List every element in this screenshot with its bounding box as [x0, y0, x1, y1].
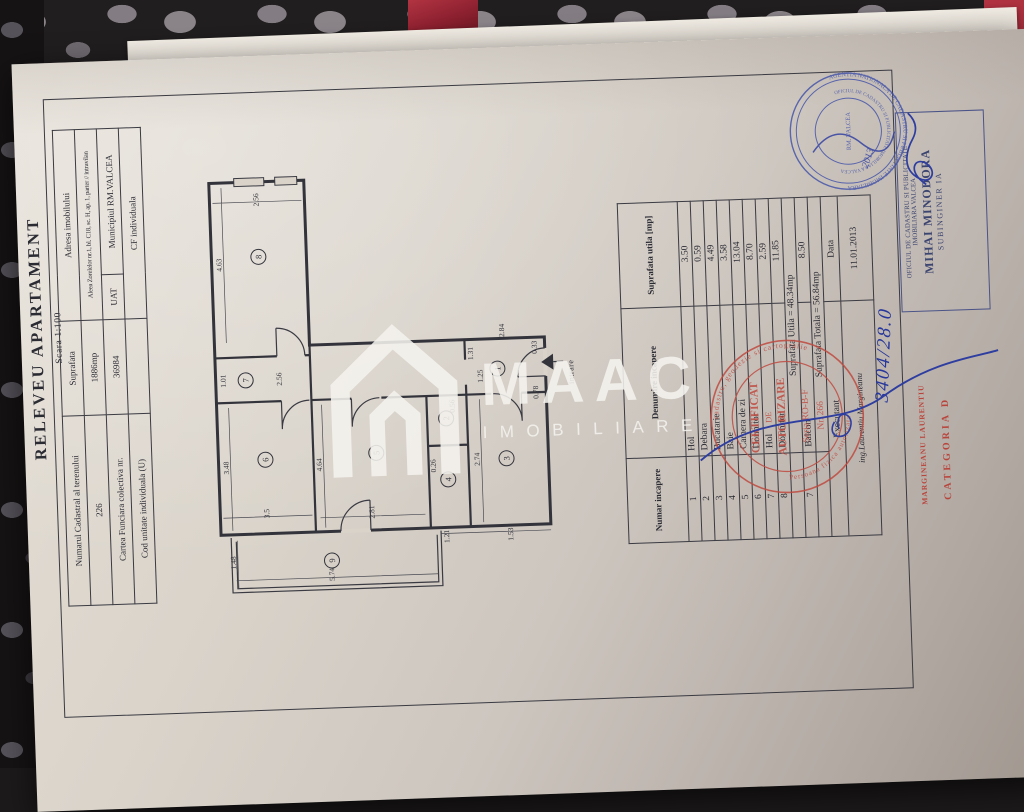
- dimension-label: 0.78: [531, 385, 540, 399]
- dimension-label: 2.81: [367, 505, 376, 519]
- window-symbol: [275, 176, 297, 185]
- dimension-label: 2.84: [497, 323, 506, 337]
- dimension-label: 0.33: [529, 340, 538, 354]
- dimension-label: 1.25: [475, 369, 484, 383]
- room-number: 4: [443, 476, 453, 481]
- dimension-label: 4.63: [214, 258, 223, 272]
- plan-wall-room7-6: [216, 401, 281, 403]
- signature-over-red-stamp: [681, 328, 1016, 489]
- rooms-header-cell: Denumire incapere: [621, 307, 686, 459]
- balcony-door-opening: [341, 530, 371, 531]
- property-table: Numarul Cadastral al terenuluiSuprafataA…: [52, 127, 158, 607]
- room-number: 7: [241, 378, 251, 383]
- document-paper: RELEVEU APARTAMENT Scara 1:100 Numarul C…: [11, 29, 1024, 812]
- dimension-label: 1.21: [442, 529, 451, 543]
- blue-round-stamp: AGENTIA NATIONALA DE CADASTRU SI PUBLICI…: [780, 63, 917, 200]
- balcony-door-arc: [340, 500, 371, 531]
- entrance-label: intrare: [566, 359, 576, 384]
- room-number: 8: [253, 255, 263, 260]
- dimension-label: 2.74: [472, 452, 481, 466]
- dimension-label: 1.01: [218, 374, 227, 388]
- plan-walls-small-rooms: [424, 340, 471, 528]
- dimension-label: 1.48: [229, 556, 238, 570]
- dimension-label: 0.56: [447, 399, 456, 413]
- window-symbol: [234, 178, 264, 187]
- document-title: RELEVEU APARTAMENT: [21, 171, 53, 505]
- room-number: 5: [371, 451, 381, 456]
- plan-wall-column-wing: [309, 345, 316, 532]
- dimension-label: 4.64: [314, 458, 323, 472]
- balcony-rail: [236, 535, 439, 589]
- door-arc: [351, 398, 380, 427]
- door-arc: [281, 400, 310, 429]
- dimension-label: 2.56: [251, 193, 260, 207]
- room-number: 1: [492, 366, 502, 371]
- plan-outer-walls: [209, 172, 551, 535]
- floor-plan: intrare 8769512432.564.631.012.563.483.5…: [178, 141, 594, 620]
- date-value: 11.01.2013: [837, 195, 873, 300]
- balcony-outline: [231, 531, 443, 593]
- date-cell: Data11.01.2013: [820, 195, 874, 302]
- property-table-wrap: Numarul Cadastral al terenuluiSuprafataA…: [52, 128, 157, 607]
- property-cell: UAT: [101, 274, 125, 320]
- property-cell: [125, 318, 150, 414]
- dimension-label: 1.53: [506, 527, 515, 541]
- dimension-label: 0.26: [429, 459, 438, 473]
- room-number: 2: [441, 416, 451, 421]
- dimension-label: 1.31: [466, 347, 475, 361]
- door-arc: [276, 327, 305, 356]
- plan-wall-room8-7: [215, 355, 310, 358]
- blue-stamp-center-text: RM. VALCEA: [845, 112, 853, 151]
- room-number: 3: [501, 456, 511, 461]
- room-number: 6: [260, 457, 270, 462]
- rooms-header-cell: Numar incapere: [626, 457, 689, 544]
- dimension-label: 5.74: [327, 567, 336, 581]
- dimension-label: 3.48: [221, 461, 230, 475]
- door-arc: [493, 393, 522, 422]
- dimension-label: 3.5: [262, 509, 271, 519]
- dimension-lines: [212, 177, 553, 589]
- dimension-label: 2.56: [274, 372, 283, 386]
- rooms-header-cell: Suprafata utila [mp]: [617, 202, 681, 309]
- room-number: 9: [327, 558, 337, 563]
- blue-stamp-signature: [812, 132, 895, 154]
